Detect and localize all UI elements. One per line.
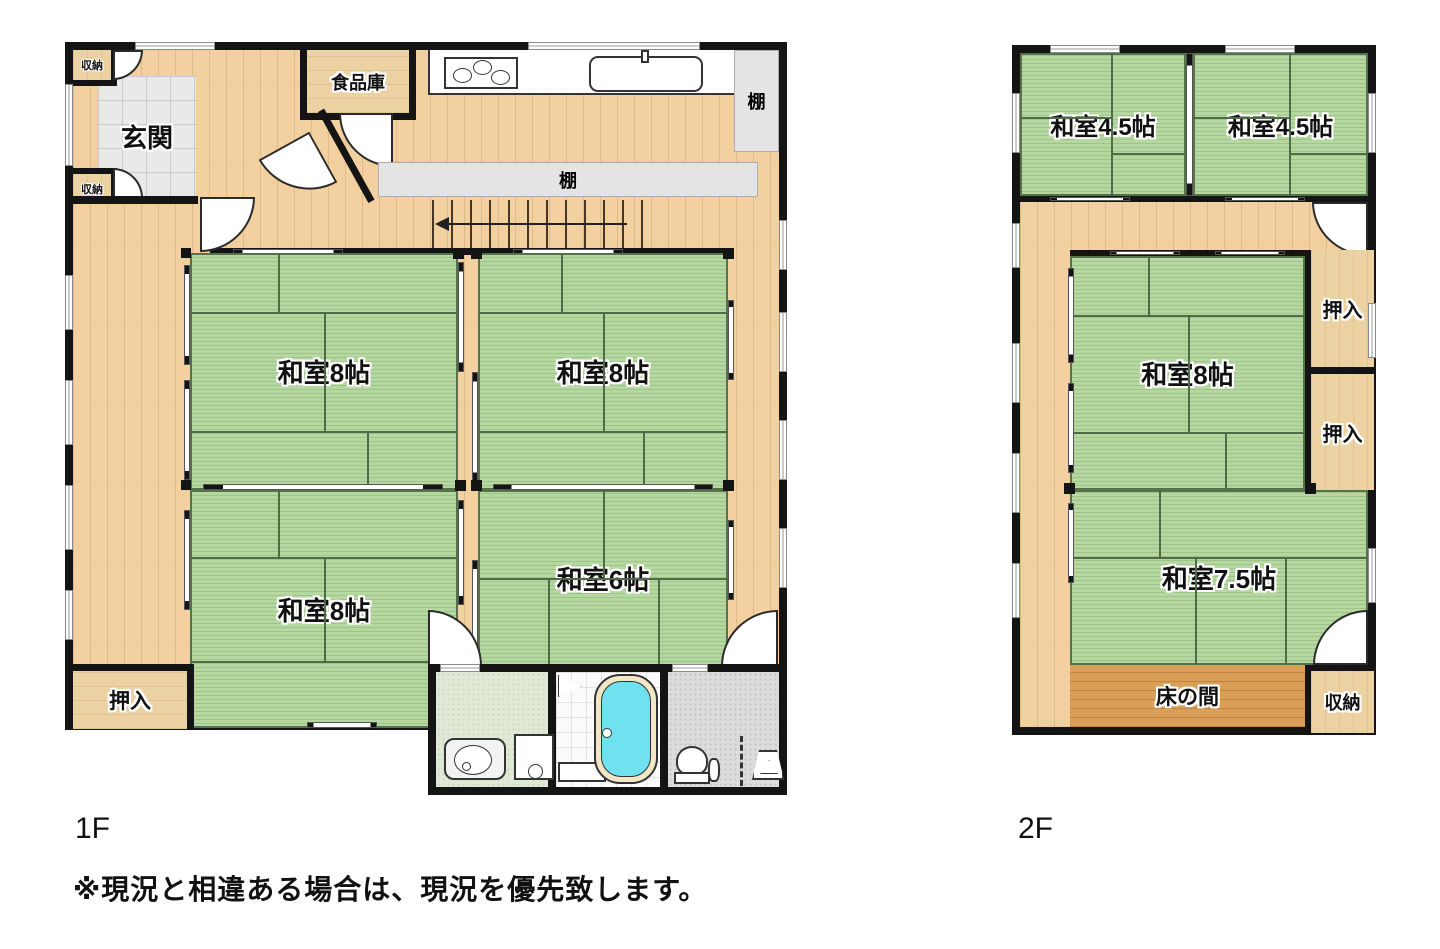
oshiire-1f-label: 押入 (109, 685, 151, 715)
toilet-side (708, 758, 720, 782)
shelf-right-label: 棚 (748, 88, 766, 114)
sliding-door (1068, 383, 1074, 473)
hand-basin-bowl (760, 760, 778, 774)
washitsu75-label: 和室7.5帖 (1162, 559, 1276, 596)
wall-stub (1064, 483, 1075, 494)
wall-segment (1305, 367, 1368, 374)
mat-line (324, 312, 326, 431)
window (779, 220, 787, 270)
mat-line (278, 253, 280, 312)
storage-top-label: 収納 (81, 57, 103, 73)
oshiire-n-label: 押入 (1323, 294, 1363, 323)
wall-stub (1305, 483, 1316, 494)
pantry-label: 食品庫 (331, 69, 385, 95)
window (65, 590, 73, 640)
sliding-door (472, 372, 478, 482)
mat-line (603, 490, 605, 578)
mat-line (1020, 117, 1111, 119)
sliding-door (1225, 197, 1305, 201)
sliding-door (203, 484, 443, 490)
window (1012, 93, 1020, 153)
mat-line (1285, 557, 1287, 666)
window (779, 528, 787, 588)
mat-line (190, 661, 458, 663)
burner-icon (453, 68, 472, 83)
room-washitsu6: 和室6帖 (478, 490, 728, 666)
sliding-door (1186, 53, 1193, 196)
room-washitsu45-e: 和室4.5帖 (1193, 53, 1368, 196)
window (779, 312, 787, 372)
stairs-arrow-shaft (447, 223, 627, 225)
mat-line (603, 312, 605, 431)
shuno-2f-label: 収納 (1325, 689, 1361, 715)
sliding-door (184, 510, 190, 610)
window (1225, 45, 1295, 53)
door-arc (259, 132, 338, 211)
mat-line (1070, 557, 1368, 559)
sliding-door (493, 484, 713, 490)
faucet-icon (641, 50, 649, 63)
mat-line (324, 557, 326, 662)
faucet-icon (462, 762, 471, 771)
shelf-center-label: 棚 (559, 167, 577, 193)
window (65, 275, 73, 330)
washitsu45-e-label: 和室4.5帖 (1228, 107, 1333, 142)
mat-line (1111, 153, 1186, 155)
sliding-door (184, 380, 190, 480)
sliding-door (1215, 251, 1285, 255)
mat-line (1225, 432, 1227, 491)
tokonoma-label: 床の間 (1156, 681, 1219, 711)
sliding-door (1050, 197, 1130, 201)
window (135, 42, 215, 50)
window (1012, 223, 1020, 268)
sliding-door (458, 500, 464, 605)
sliding-door (184, 265, 190, 365)
mat-line (278, 490, 280, 557)
drain-icon (602, 728, 612, 738)
mat-line (1193, 117, 1289, 119)
sliding-door (728, 520, 734, 600)
wall-stub (723, 248, 734, 259)
window (65, 380, 73, 445)
stairs-arrow-head (435, 217, 449, 231)
mat-line (1111, 53, 1113, 196)
washbasin-icon (444, 738, 506, 780)
bathtub-icon (594, 674, 658, 784)
sliding-door (1068, 503, 1074, 583)
room-washitsu8-nw: 和室8帖 (190, 253, 458, 490)
wall-stub (181, 248, 191, 258)
room-washitsu8-ne: 和室8帖 (478, 253, 728, 490)
mat-line (643, 431, 645, 490)
room-oshiire-n: 押入 (1305, 250, 1374, 367)
door-arc (721, 610, 778, 666)
wall-stub (455, 480, 466, 491)
sliding-door (1068, 268, 1074, 363)
sliding-door (458, 262, 464, 372)
window (1368, 303, 1376, 358)
window (1012, 453, 1020, 513)
basin-bowl-icon (454, 745, 492, 775)
wall-stub (471, 480, 482, 491)
toilet-tank (674, 772, 710, 784)
mat-line (190, 431, 458, 433)
room-washitsu8-2f: 和室8帖 (1070, 256, 1305, 490)
mat-line (1188, 315, 1190, 432)
burner-icon (473, 60, 492, 75)
mat-line (1289, 53, 1291, 196)
window (1368, 548, 1376, 603)
mat-line (478, 431, 728, 433)
burner-icon (491, 70, 510, 85)
mat-line (548, 578, 550, 666)
wall-stub (1012, 308, 1020, 322)
oshiire-s-label: 押入 (1323, 418, 1363, 447)
room-storage-top: 収納 (73, 50, 117, 86)
door-opening (440, 664, 480, 672)
mat-line (1289, 153, 1368, 155)
sliding-door (307, 722, 377, 728)
room-tokonoma: 床の間 (1070, 665, 1305, 727)
sliding-door (1110, 251, 1180, 255)
room-washitsu45-w: 和室4.5帖 (1020, 53, 1186, 196)
genkan-label: 玄関 (121, 118, 173, 155)
partition (740, 736, 743, 786)
window (65, 485, 73, 550)
wall-stub (471, 248, 482, 259)
window (1012, 343, 1020, 403)
door-opening (672, 664, 708, 672)
window (528, 42, 700, 50)
shelf-center: 棚 (378, 162, 758, 197)
room-oshiire-1f: 押入 (73, 664, 194, 729)
window (779, 420, 787, 480)
mat-line (658, 578, 660, 666)
washitsu45-w-label: 和室4.5帖 (1050, 107, 1155, 142)
sliding-door (728, 300, 734, 380)
floor1-title: 1F (75, 812, 110, 846)
mat-line (1148, 256, 1150, 315)
floor2-title: 2F (1018, 812, 1053, 846)
stove-icon (444, 57, 518, 89)
entrance-door (65, 84, 73, 166)
window (1012, 563, 1020, 618)
shelf-right: 棚 (734, 50, 779, 152)
mat-line (561, 253, 563, 312)
mat-line (1195, 557, 1197, 666)
mat-line (1070, 432, 1305, 434)
stairs (432, 200, 659, 250)
room-washitsu8-sw: 和室8帖 (190, 490, 458, 728)
wall-stub (453, 248, 464, 259)
storage-mid-label: 収納 (81, 181, 103, 197)
room-shuno-2f: 収納 (1305, 665, 1374, 733)
mat-line (367, 431, 369, 490)
wall-stub (723, 480, 734, 491)
room-oshiire-s: 押入 (1305, 374, 1374, 490)
wall-segment (660, 672, 668, 787)
mat-line (1159, 490, 1161, 557)
wall-segment (73, 196, 198, 204)
mat-line (478, 578, 728, 580)
drain-icon (528, 764, 543, 779)
plan-2f: 和室4.5帖 和室4.5帖 和室8帖 押入 (1012, 45, 1376, 735)
room-pantry: 食品庫 (300, 50, 416, 120)
washing-machine-icon (514, 734, 554, 780)
wall-stub (181, 480, 191, 490)
plan-1f: 玄関 収納 収納 食品庫 棚 (65, 42, 787, 730)
disclaimer-note: ※現況と相違ある場合は、現況を優先致します。 (73, 868, 707, 908)
window (1368, 93, 1376, 153)
door-arc (1312, 202, 1368, 256)
plan-1f-annex (428, 664, 787, 795)
wall-stub (1012, 533, 1020, 547)
door-arc (200, 197, 255, 252)
floorplan-canvas: 玄関 収納 収納 食品庫 棚 (0, 0, 1440, 949)
window (1050, 45, 1120, 53)
